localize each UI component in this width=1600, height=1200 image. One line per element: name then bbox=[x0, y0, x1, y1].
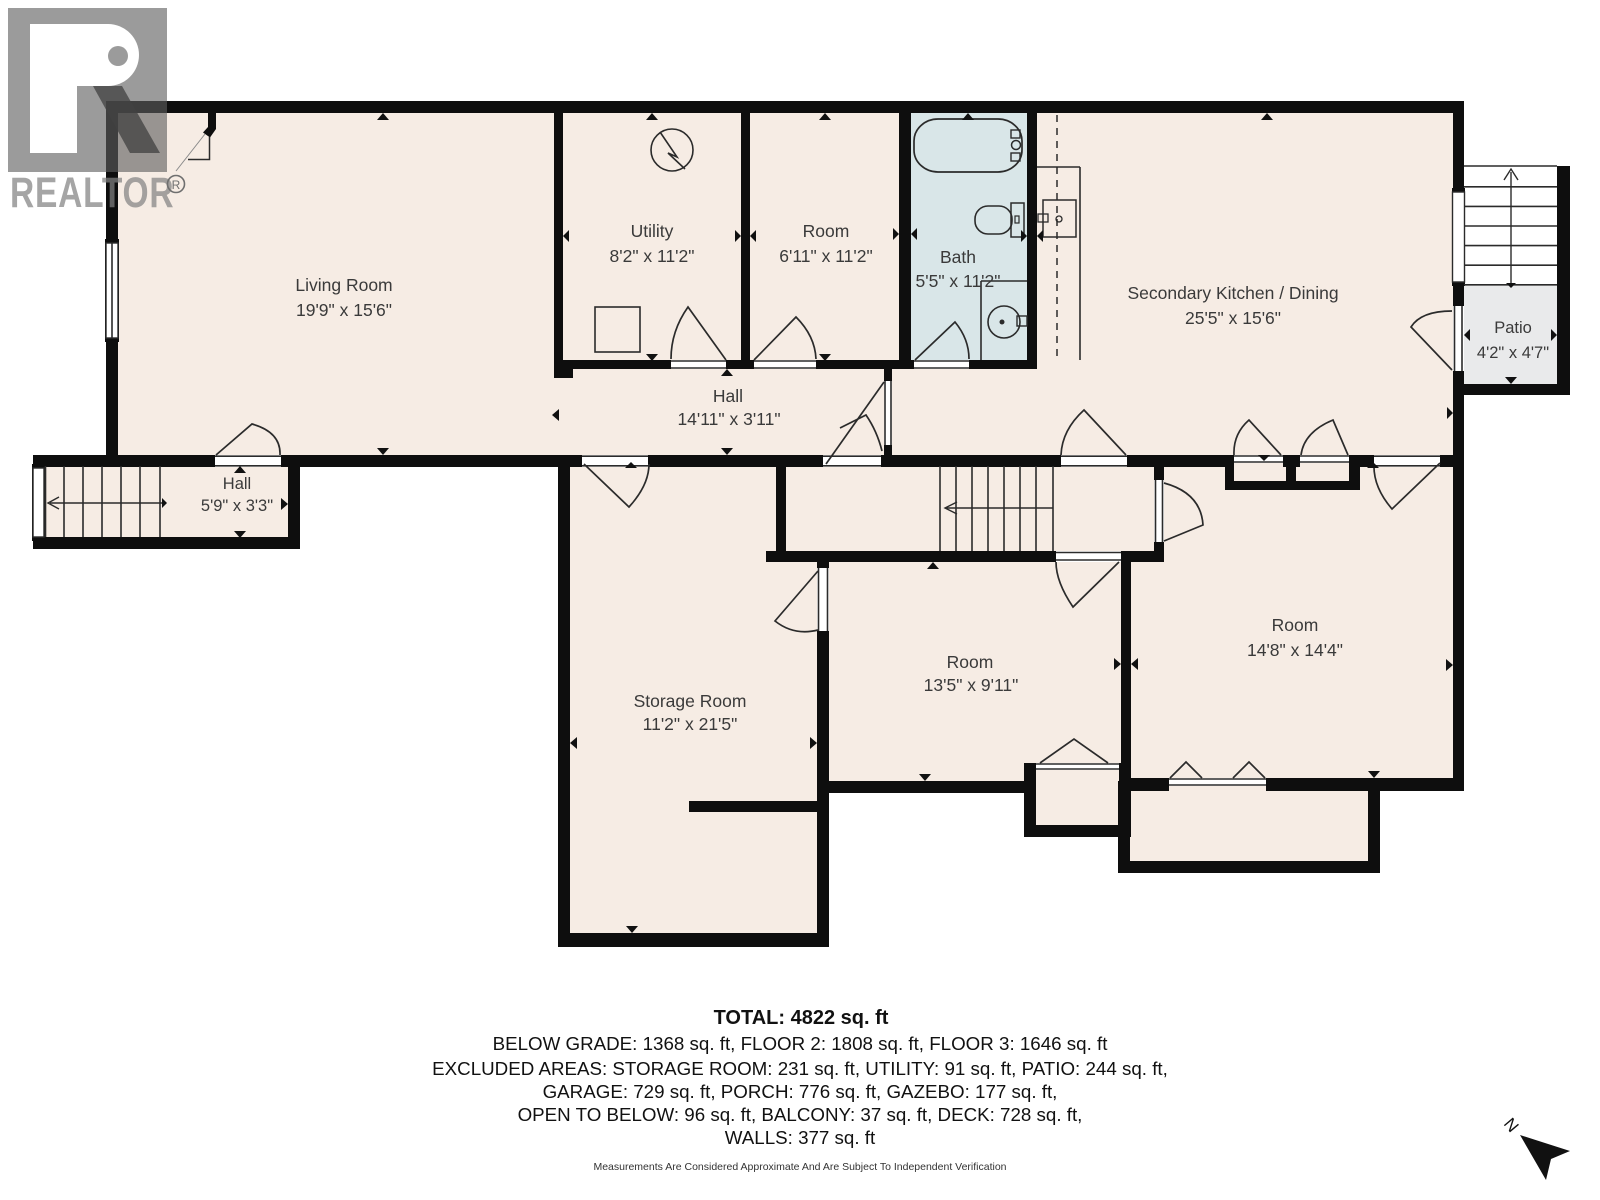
svg-text:Room: Room bbox=[1272, 615, 1319, 635]
svg-text:TOTAL: 4822 sq. ft: TOTAL: 4822 sq. ft bbox=[714, 1007, 889, 1029]
svg-text:14'11" x 3'11": 14'11" x 3'11" bbox=[677, 409, 780, 429]
svg-text:GARAGE: 729 sq. ft, PORCH: 776: GARAGE: 729 sq. ft, PORCH: 776 sq. ft, G… bbox=[543, 1081, 1058, 1102]
svg-text:WALLS: 377 sq. ft: WALLS: 377 sq. ft bbox=[725, 1127, 876, 1148]
svg-text:5'9" x 3'3": 5'9" x 3'3" bbox=[201, 497, 273, 515]
svg-text:OPEN TO BELOW: 96 sq. ft, BALC: OPEN TO BELOW: 96 sq. ft, BALCONY: 37 sq… bbox=[518, 1104, 1083, 1125]
svg-text:Bath: Bath bbox=[940, 247, 976, 267]
svg-text:6'11" x 11'2": 6'11" x 11'2" bbox=[779, 246, 872, 266]
svg-text:11'2" x 21'5": 11'2" x 21'5" bbox=[643, 714, 738, 734]
svg-text:Room: Room bbox=[803, 221, 850, 241]
svg-text:19'9" x 15'6": 19'9" x 15'6" bbox=[296, 300, 392, 320]
svg-text:4'2" x 4'7": 4'2" x 4'7" bbox=[1477, 344, 1549, 362]
svg-text:14'8" x 14'4": 14'8" x 14'4" bbox=[1247, 640, 1343, 660]
svg-text:8'2" x 11'2": 8'2" x 11'2" bbox=[610, 246, 695, 266]
svg-text:13'5" x 9'11": 13'5" x 9'11" bbox=[924, 675, 1019, 695]
svg-text:EXCLUDED AREAS: STORAGE ROOM:: EXCLUDED AREAS: STORAGE ROOM: 231 sq. ft… bbox=[432, 1058, 1168, 1079]
svg-text:Room: Room bbox=[947, 652, 994, 672]
svg-text:25'5" x 15'6": 25'5" x 15'6" bbox=[1185, 308, 1281, 328]
svg-text:Patio: Patio bbox=[1494, 319, 1532, 337]
svg-text:Storage Room: Storage Room bbox=[634, 691, 747, 711]
svg-text:5'5" x 11'2": 5'5" x 11'2" bbox=[916, 271, 1001, 291]
svg-text:Measurements Are Considered Ap: Measurements Are Considered Approximate … bbox=[593, 1161, 1006, 1173]
svg-text:R: R bbox=[172, 178, 181, 192]
svg-text:REALTOR: REALTOR bbox=[10, 169, 174, 217]
svg-text:Living Room: Living Room bbox=[295, 275, 392, 295]
svg-text:BELOW GRADE: 1368 sq. ft, FLOO: BELOW GRADE: 1368 sq. ft, FLOOR 2: 1808 … bbox=[493, 1033, 1109, 1054]
svg-text:Utility: Utility bbox=[631, 221, 674, 241]
svg-text:Hall: Hall bbox=[713, 386, 743, 406]
svg-text:Secondary Kitchen / Dining: Secondary Kitchen / Dining bbox=[1127, 283, 1338, 303]
svg-text:Hall: Hall bbox=[223, 475, 251, 493]
